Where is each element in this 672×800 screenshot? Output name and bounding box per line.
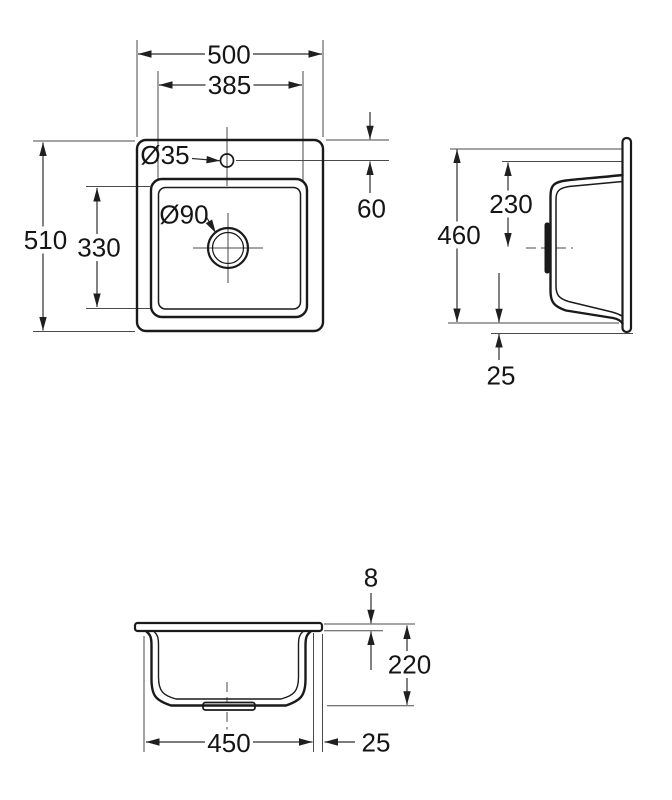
dim-230-label: 230 bbox=[489, 189, 532, 219]
dim-450-label: 450 bbox=[207, 728, 250, 758]
dim-60-label: 60 bbox=[357, 194, 386, 224]
dimension-lines bbox=[43, 54, 508, 742]
taphole-diameter-label: Ø35 bbox=[140, 140, 189, 170]
dim-8-label: 8 bbox=[364, 563, 378, 593]
dimension-labels: 500 385 510 330 60 Ø35 Ø90 460 230 25 8 … bbox=[22, 40, 536, 759]
sink-technical-drawing-page: 500 385 510 330 60 Ø35 Ø90 460 230 25 8 … bbox=[0, 0, 672, 800]
dim-25-side-label: 25 bbox=[487, 361, 516, 391]
extension-lines bbox=[33, 40, 633, 752]
bowl-profile-outer bbox=[551, 175, 623, 324]
overflow-boss bbox=[545, 223, 551, 274]
dim-330-label: 330 bbox=[77, 233, 120, 263]
dim-385-label: 385 bbox=[208, 70, 251, 100]
drain-diameter-label: Ø90 bbox=[159, 200, 208, 230]
sink-technical-drawing: 500 385 510 330 60 Ø35 Ø90 460 230 25 8 … bbox=[0, 0, 672, 800]
front-view bbox=[135, 623, 322, 710]
dim-25-front-label: 25 bbox=[362, 728, 391, 758]
rim-front-outline bbox=[135, 623, 322, 631]
side-view bbox=[545, 138, 632, 332]
bowl-profile-inner bbox=[556, 182, 623, 317]
leader-taphole-diameter bbox=[192, 159, 220, 161]
dim-510-label: 510 bbox=[24, 225, 67, 255]
bowl-front-inner bbox=[154, 632, 303, 700]
dim-500-label: 500 bbox=[207, 40, 250, 70]
bowl-front-outer bbox=[147, 632, 311, 706]
dim-220-label: 220 bbox=[388, 650, 431, 680]
dim-460-label: 460 bbox=[437, 220, 480, 250]
rim-edge-profile bbox=[623, 138, 632, 332]
